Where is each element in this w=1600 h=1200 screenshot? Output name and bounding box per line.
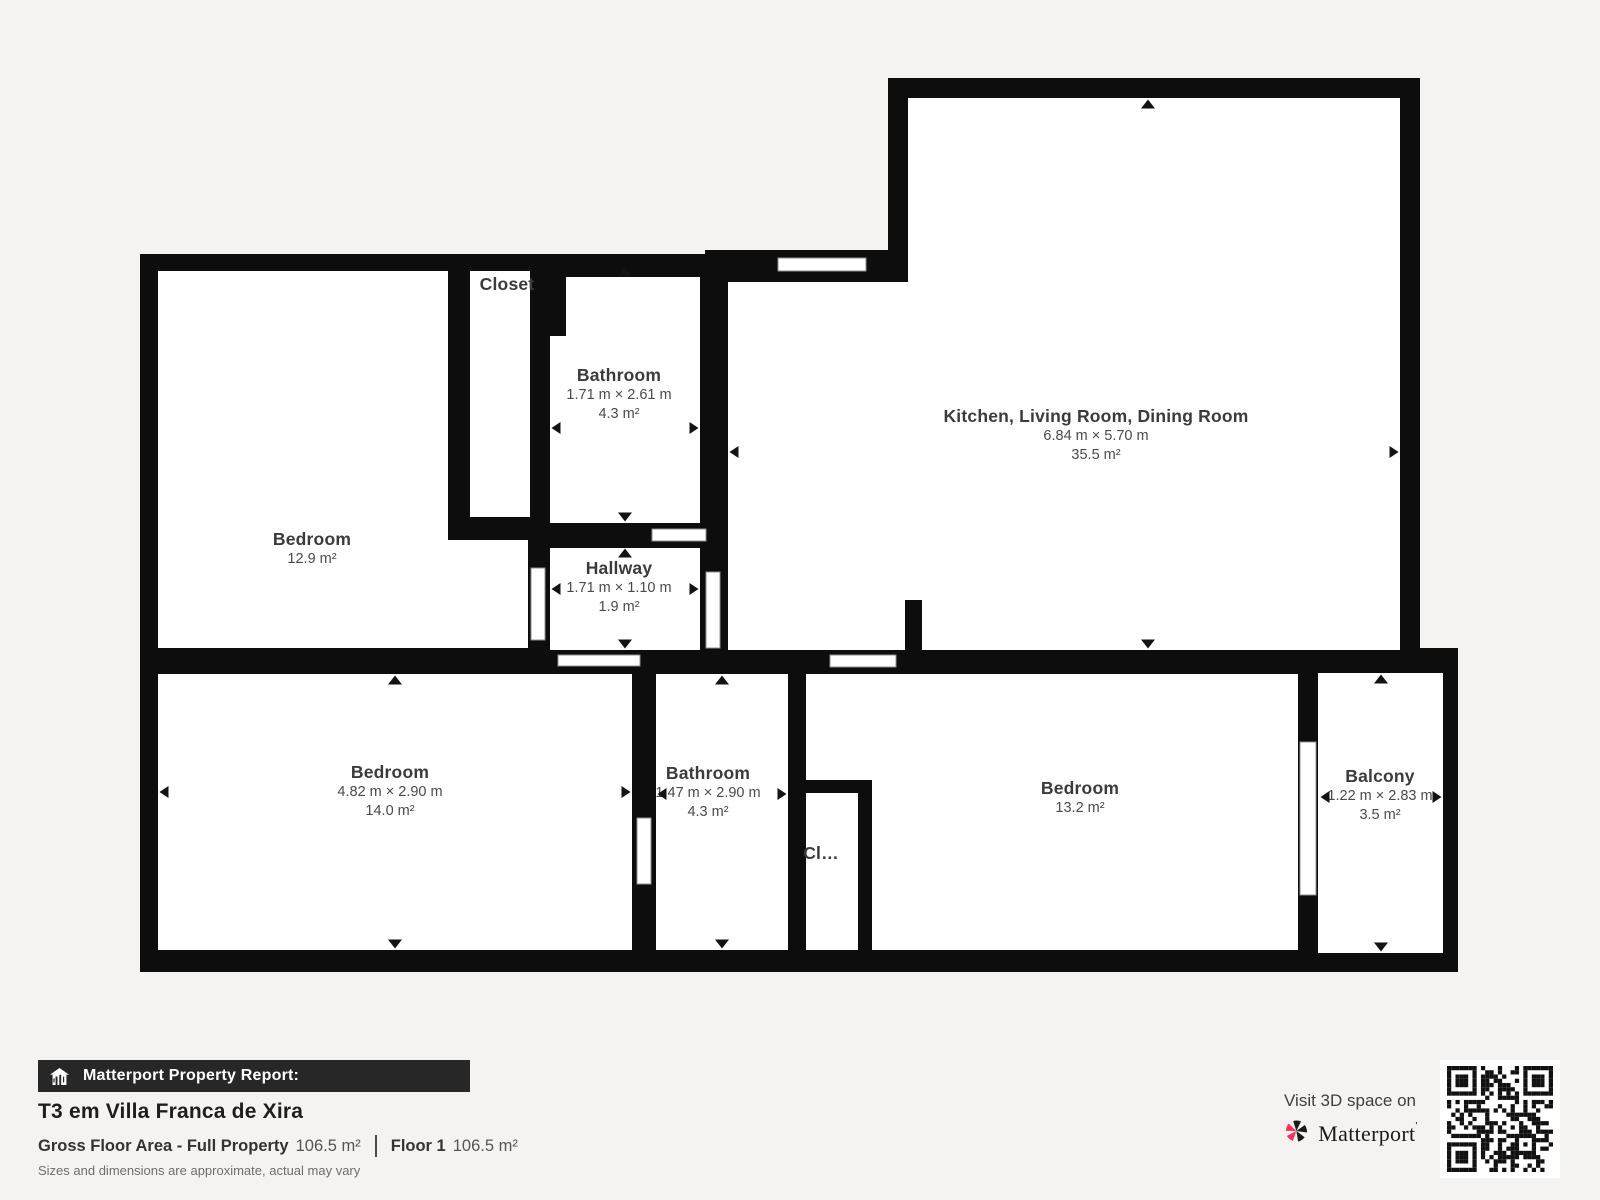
dimension-arrow-left-icon	[730, 446, 739, 458]
dimension-arrow-up-icon	[388, 676, 402, 685]
door-balcony-slider	[1300, 742, 1316, 895]
dimension-arrow-up-icon	[1141, 100, 1155, 109]
property-title: T3 em Villa Franca de Xira	[38, 1100, 303, 1124]
gross-floor-area-value: 106.5 m²	[296, 1137, 361, 1156]
floor-plan	[0, 0, 1600, 1200]
dimension-arrow-right-icon	[622, 786, 631, 798]
dimension-arrow-up-icon	[1374, 675, 1388, 684]
room-label-closet-bottom: Cl…	[803, 843, 839, 864]
matterport-logo: Matterport'	[1282, 1117, 1417, 1150]
door-hallway-bedroom-left	[531, 568, 545, 640]
room-name: Bathroom	[566, 365, 671, 386]
room-area: 1.9 m²	[566, 598, 671, 617]
floor-area-line: Gross Floor Area - Full Property 106.5 m…	[38, 1135, 518, 1157]
door-hallway-bottom	[558, 655, 640, 666]
dimension-arrow-right-icon	[1433, 791, 1442, 803]
floor-label: Floor 1	[391, 1137, 446, 1156]
room-dimensions: 1.22 m × 2.83 m	[1327, 787, 1432, 806]
door-bathroom-top-hallway	[652, 529, 706, 541]
room-name: Hallway	[566, 558, 671, 579]
door-hallway-kitchen	[706, 572, 720, 648]
dimension-arrow-left-icon	[658, 788, 667, 800]
door-bathroom-bottom	[637, 818, 651, 884]
qr-code	[1440, 1060, 1560, 1183]
room-area: 4.3 m²	[566, 405, 671, 424]
matterport-pinwheel-icon	[1282, 1117, 1310, 1150]
entry-door	[778, 258, 866, 271]
wall-details	[905, 600, 922, 650]
room-dimensions: 1.71 m × 2.61 m	[566, 386, 671, 405]
dimension-arrow-up-icon	[715, 676, 729, 685]
room-dimensions: 1.47 m × 2.90 m	[655, 784, 760, 803]
visit-3d-label: Visit 3D space on	[1282, 1091, 1417, 1111]
room-label-bedroom-bottom-left: Bedroom4.82 m × 2.90 m14.0 m²	[337, 762, 442, 821]
room-name: Bathroom	[655, 763, 760, 784]
room-name: Closet	[480, 274, 535, 295]
room-area: 13.2 m²	[1041, 799, 1119, 818]
dimension-arrow-down-icon	[618, 640, 632, 649]
room-name: Kitchen, Living Room, Dining Room	[943, 406, 1248, 427]
dimension-arrow-down-icon	[618, 513, 632, 522]
dimension-arrow-left-icon	[552, 583, 561, 595]
floor-value: 106.5 m²	[453, 1137, 518, 1156]
wall-stub-kitchen	[905, 600, 922, 650]
door-kitchen-bedroom-right	[830, 655, 896, 667]
room-area: 14.0 m²	[337, 802, 442, 821]
dimension-arrow-down-icon	[1374, 943, 1388, 952]
report-bar-label: Matterport Property Report:	[83, 1067, 299, 1085]
room-name: Bedroom	[1041, 778, 1119, 799]
dimension-arrow-left-icon	[552, 422, 561, 434]
room-area: 4.3 m²	[655, 803, 760, 822]
room-area: 12.9 m²	[273, 550, 351, 569]
room-dimensions: 1.71 m × 1.10 m	[566, 579, 671, 598]
room-label-bathroom-bottom: Bathroom1.47 m × 2.90 m4.3 m²	[655, 763, 760, 822]
disclaimer-text: Sizes and dimensions are approximate, ac…	[38, 1163, 360, 1178]
room-dimensions: 6.84 m × 5.70 m	[943, 427, 1248, 446]
dimension-arrow-up-icon	[618, 549, 632, 558]
gross-floor-area-label: Gross Floor Area - Full Property	[38, 1137, 289, 1156]
house-icon	[50, 1068, 69, 1085]
dimension-arrow-up-icon	[618, 268, 632, 277]
brand-trademark: '	[1415, 1120, 1417, 1132]
dimension-arrow-down-icon	[388, 940, 402, 949]
room-label-bedroom-top-left: Bedroom12.9 m²	[273, 529, 351, 569]
room-floor-closet-top	[470, 271, 530, 517]
report-bar: Matterport Property Report:	[38, 1060, 470, 1092]
dimension-arrow-right-icon	[778, 788, 787, 800]
room-floor-kitchen-living-dining	[728, 98, 1400, 650]
dimension-arrow-down-icon	[1141, 640, 1155, 649]
room-label-bathroom-top: Bathroom1.71 m × 2.61 m4.3 m²	[566, 365, 671, 424]
room-label-bedroom-bottom-right: Bedroom13.2 m²	[1041, 778, 1119, 818]
matterport-wordmark: Matterport'	[1318, 1121, 1417, 1147]
dimension-arrow-right-icon	[1390, 446, 1399, 458]
room-name: Bedroom	[273, 529, 351, 550]
room-area: 3.5 m²	[1327, 806, 1432, 825]
room-name: Bedroom	[337, 762, 442, 783]
room-dimensions: 4.82 m × 2.90 m	[337, 783, 442, 802]
room-label-balcony: Balcony1.22 m × 2.83 m3.5 m²	[1327, 766, 1432, 825]
dimension-arrow-left-icon	[160, 786, 169, 798]
room-floor-closet-bottom	[806, 793, 858, 950]
dimension-arrow-right-icon	[690, 583, 699, 595]
room-label-kitchen-living-dining: Kitchen, Living Room, Dining Room6.84 m …	[943, 406, 1248, 465]
room-label-closet-top: Closet	[480, 274, 535, 295]
visit-3d-block[interactable]: Visit 3D space on Matterport'	[1282, 1091, 1417, 1150]
divider	[375, 1135, 377, 1157]
room-name: Cl…	[803, 843, 839, 864]
room-name: Balcony	[1327, 766, 1432, 787]
dimension-arrow-down-icon	[715, 940, 729, 949]
dimension-arrow-right-icon	[690, 422, 699, 434]
room-label-hallway: Hallway1.71 m × 1.10 m1.9 m²	[566, 558, 671, 617]
dimension-arrow-left-icon	[1321, 791, 1330, 803]
floor-plan-report: Bedroom12.9 m²ClosetBathroom1.71 m × 2.6…	[0, 0, 1600, 1200]
room-area: 35.5 m²	[943, 446, 1248, 465]
